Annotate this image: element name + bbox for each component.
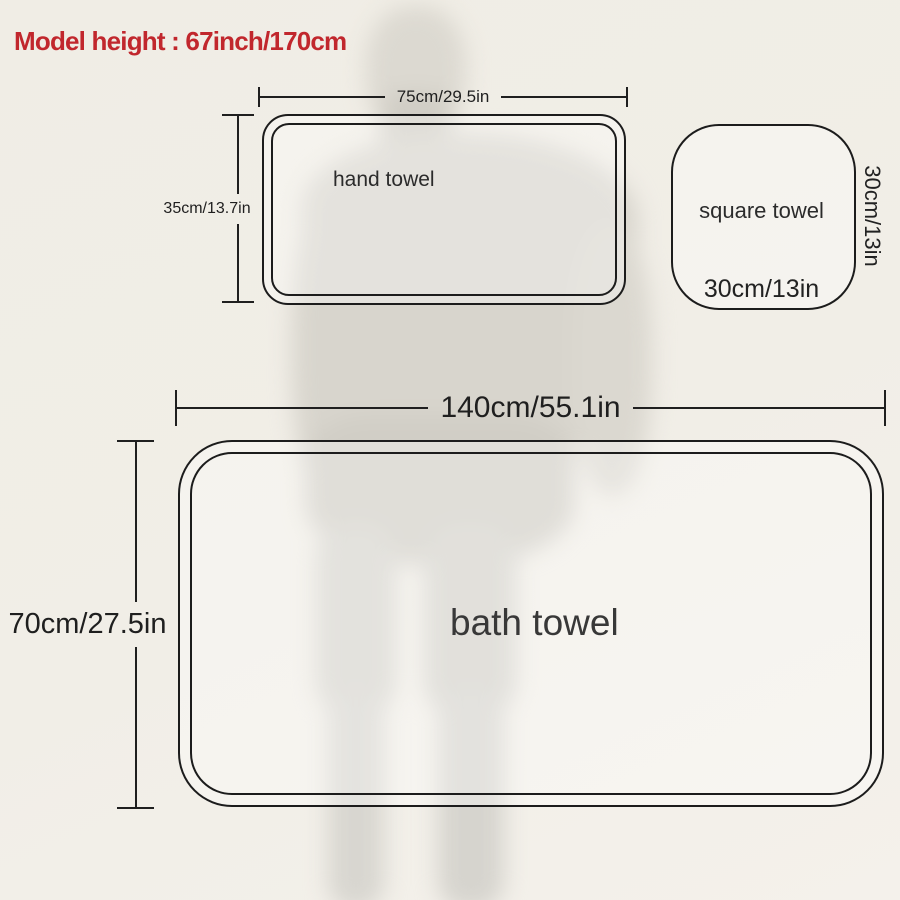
page-title: Model height : 67inch/170cm <box>14 26 346 57</box>
square-towel-bottom-dimension: 30cm/13in <box>671 275 852 304</box>
dimension-line-segment <box>501 96 626 98</box>
dimension-line-segment <box>633 407 884 409</box>
hand-towel-outline <box>262 114 626 305</box>
hand-towel-inner-outline <box>271 123 617 296</box>
dimension-line-segment <box>237 116 239 194</box>
dimension-line-segment <box>237 224 239 302</box>
dimension-tick <box>222 301 254 303</box>
bath-towel-width-label: 140cm/55.1in <box>440 391 620 425</box>
bath-towel-label: bath towel <box>450 602 619 644</box>
dimension-tick <box>626 87 628 107</box>
square-towel-label: square towel <box>671 198 852 224</box>
dimension-line-segment <box>177 407 428 409</box>
dimension-tick <box>884 390 886 426</box>
bath-towel-height-label: 70cm/27.5in <box>9 608 167 641</box>
hand-towel-height-dimension: 35cm/13.7in <box>222 114 254 303</box>
hand-towel-height-label: 35cm/13.7in <box>163 200 250 218</box>
bath-towel-height-dimension: 70cm/27.5in <box>117 440 154 809</box>
size-chart-diagram: Model height : 67inch/170cm hand towel 7… <box>0 0 900 900</box>
bath-towel-width-dimension: 140cm/55.1in <box>175 390 886 426</box>
dimension-tick <box>117 807 154 809</box>
hand-towel-label: hand towel <box>333 168 435 192</box>
hand-towel-width-dimension: 75cm/29.5in <box>258 87 628 107</box>
dimension-line-segment <box>260 96 385 98</box>
dimension-line-segment <box>135 442 137 602</box>
square-towel-side-dimension: 30cm/13in <box>861 161 885 271</box>
dimension-line-segment <box>135 647 137 807</box>
hand-towel-width-label: 75cm/29.5in <box>397 87 490 107</box>
